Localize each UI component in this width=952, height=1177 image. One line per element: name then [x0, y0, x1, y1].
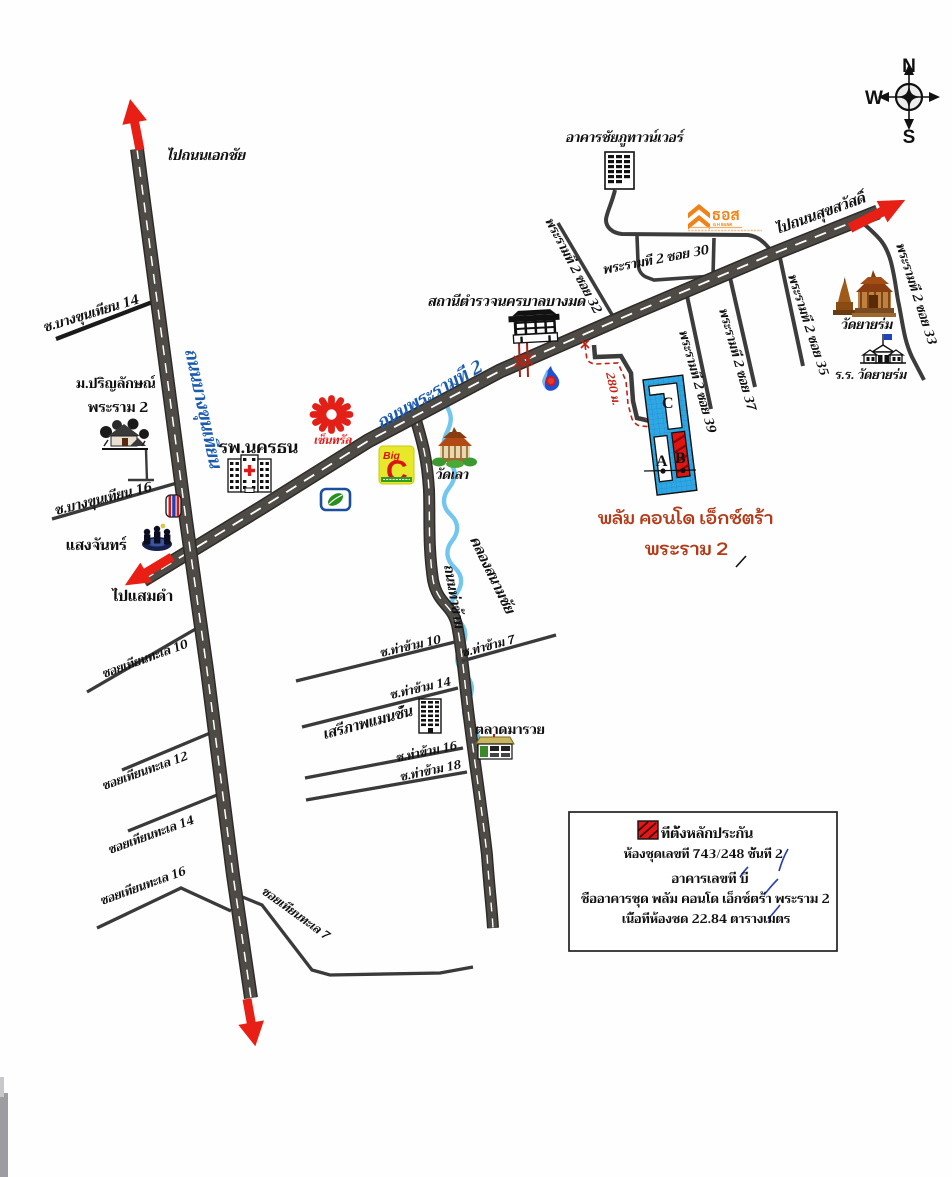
- svg-text:N: N: [902, 56, 916, 77]
- svg-text:B: B: [675, 450, 686, 467]
- svg-text:W: W: [865, 88, 883, 109]
- svg-text:S: S: [903, 127, 916, 148]
- svg-text:C: C: [662, 395, 674, 412]
- svg-text:C: C: [386, 455, 408, 488]
- svg-text:A: A: [656, 453, 668, 470]
